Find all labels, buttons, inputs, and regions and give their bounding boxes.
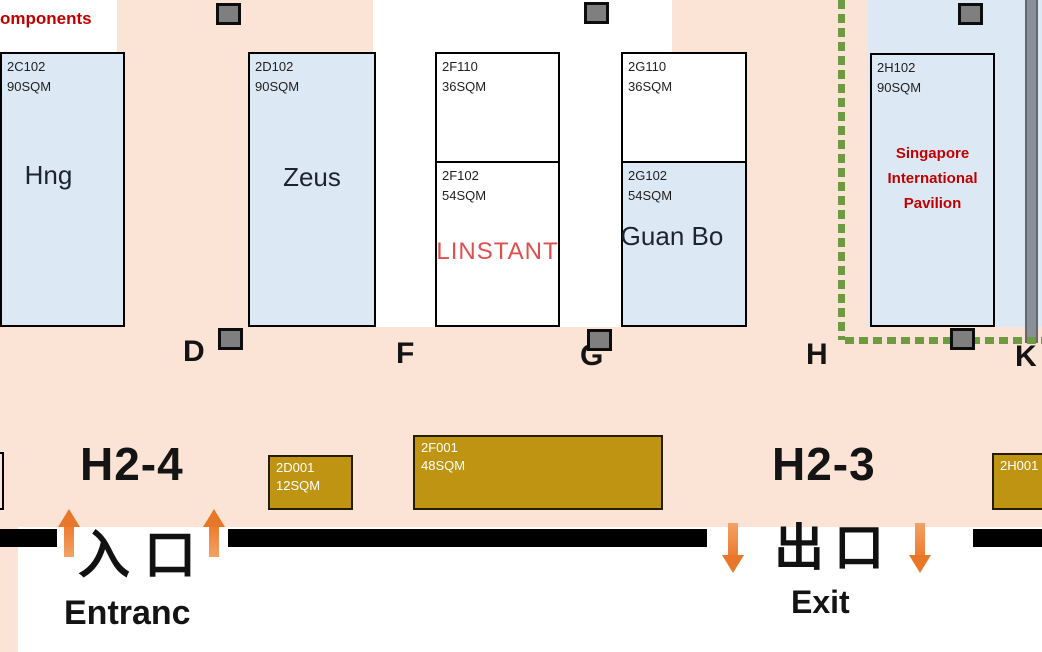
booth-id: 2G110 <box>623 54 745 77</box>
exit-arrow-down-icon <box>909 523 931 573</box>
exhibition-floorplan: omponents 2C102 90SQM Hng 2D102 90SQM Ze… <box>0 0 1042 652</box>
exit-arrow-down-icon <box>722 523 744 573</box>
wall-divider-gray-bar <box>1025 0 1038 343</box>
pavilion-boundary-dashed-line-vertical <box>838 0 845 340</box>
stand-id: 2H001 <box>1000 457 1042 475</box>
exit-label-en: Exit <box>791 584 850 621</box>
stand-id: 2D001 <box>276 459 351 477</box>
legend-text-fragment: omponents <box>0 9 92 29</box>
entrance-arrow-up-icon <box>58 509 80 557</box>
wall-segment <box>973 529 1042 547</box>
booth-size: 90SQM <box>872 78 993 98</box>
pavilion-name-line: Pavilion <box>872 191 993 216</box>
booth-name: Singapore International Pavilion <box>872 141 993 216</box>
pavilion-name-line: International <box>872 166 993 191</box>
booth-2C102: 2C102 90SQM Hng <box>0 52 125 327</box>
booth-size: 36SQM <box>623 77 745 97</box>
wall-segment <box>0 529 57 547</box>
booth-2F102: 2F102 54SQM LINSTANT <box>435 161 560 327</box>
pillar-icon <box>216 3 241 25</box>
aisle-letter-d: D <box>183 335 205 369</box>
partial-booth-outline <box>0 452 4 510</box>
aisle-letter-k: K <box>1015 340 1037 374</box>
booth-name: LINSTANT <box>437 171 558 333</box>
pillar-icon <box>584 2 609 24</box>
entrance-label-cn: 入口 <box>78 513 210 588</box>
booth-name: Guan Bo <box>611 155 733 317</box>
stand-2F001: 2F001 48SQM <box>413 435 663 510</box>
booth-2G102: 2G102 54SQM Guan Bo <box>621 161 747 327</box>
pillar-icon <box>950 328 975 350</box>
stand-2D001: 2D001 12SQM <box>268 455 353 510</box>
booth-2H102: 2H102 90SQM Singapore International Pavi… <box>870 53 995 327</box>
entrance-label-en: Entranc <box>64 594 191 633</box>
booth-2D102: 2D102 90SQM Zeus <box>248 52 376 327</box>
stand-size: 12SQM <box>276 477 351 495</box>
booth-name: Zeus <box>250 42 374 313</box>
booth-id: 2F110 <box>437 54 558 77</box>
hall-label-h2-3: H2-3 <box>772 437 876 491</box>
pillar-icon <box>958 3 983 25</box>
booth-2G110: 2G110 36SQM <box>621 52 747 163</box>
pillar-icon <box>587 329 612 351</box>
hall-label-h2-4: H2-4 <box>80 437 184 491</box>
stand-size: 48SQM <box>421 457 661 475</box>
booth-name: Hng <box>0 40 109 311</box>
stand-id: 2F001 <box>421 439 661 457</box>
exit-label-cn: 出口 <box>774 508 894 580</box>
pavilion-boundary-dashed-line-horizontal <box>845 337 1042 344</box>
aisle-letter-f: F <box>396 337 414 371</box>
pillar-icon <box>218 328 243 350</box>
pavilion-name-line: Singapore <box>872 141 993 166</box>
booth-size: 36SQM <box>437 77 558 97</box>
aisle-letter-h: H <box>806 338 828 372</box>
stand-2H001: 2H001 <box>992 453 1042 510</box>
booth-2F110: 2F110 36SQM <box>435 52 560 163</box>
wall-segment <box>228 529 707 547</box>
booth-id: 2H102 <box>872 55 993 78</box>
